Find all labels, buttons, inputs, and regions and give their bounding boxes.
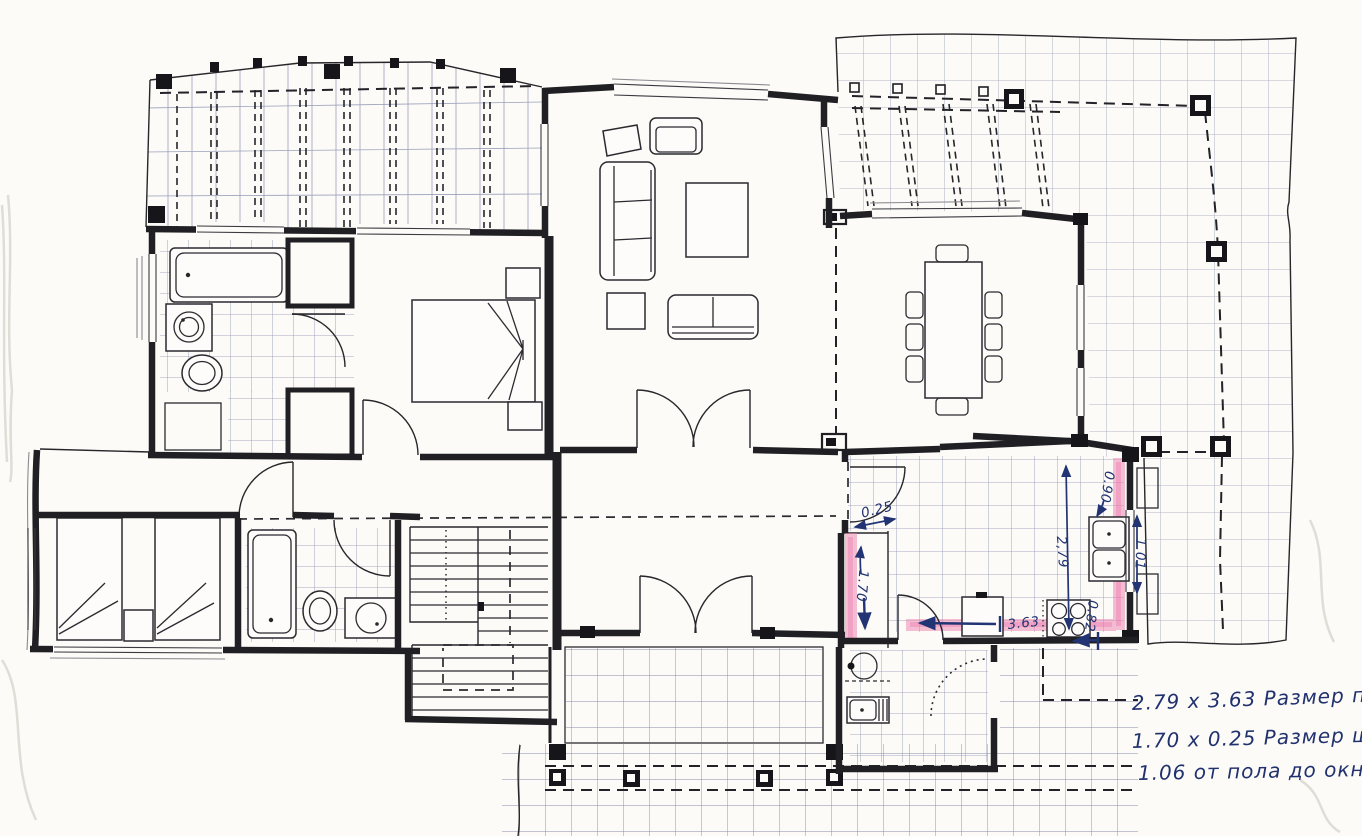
french-door-living xyxy=(637,390,750,448)
staircase xyxy=(410,527,548,722)
bathroom-2 xyxy=(246,520,396,642)
bathtub-2 xyxy=(248,530,296,638)
pergola-terrace xyxy=(140,55,550,235)
utility-room xyxy=(845,650,988,762)
closet-bottom xyxy=(288,390,352,456)
master-bedroom-door xyxy=(363,400,418,455)
square-table xyxy=(607,293,645,329)
side-table xyxy=(603,125,641,156)
note-line-1: 2.79 x 3.63 Размер по с xyxy=(1131,682,1362,715)
nightstand-top xyxy=(506,268,540,298)
master-bedroom xyxy=(363,268,542,455)
sink xyxy=(166,304,212,351)
bathroom-1 xyxy=(160,240,354,456)
note-line-3: 1.06 от пола до окна. xyxy=(1138,757,1362,785)
dim-kitchen-depth: 2,79 xyxy=(1053,536,1071,569)
dim-cabinet-length: 1.70 xyxy=(853,569,872,602)
double-bed xyxy=(412,300,535,402)
toilet-2 xyxy=(303,591,337,631)
toilet xyxy=(182,355,222,391)
dining-table xyxy=(925,262,982,398)
bedroom2-door xyxy=(239,462,293,517)
closet-top xyxy=(288,240,352,306)
dim-kitchen-width: 3.63 xyxy=(1007,614,1041,633)
floor-plan-scan: 2,79 3.63 0.25 1.70 0.90 1.01 0.82 2.79 … xyxy=(0,0,1362,836)
handwritten-notes: 2.79 x 3.63 Размер по с 1.70 x 0.25 Разм… xyxy=(1131,682,1362,785)
single-bed-1 xyxy=(57,518,122,640)
utility-sink xyxy=(847,697,889,723)
bathtub xyxy=(170,248,288,302)
single-bed-2 xyxy=(155,518,220,640)
armchair xyxy=(650,118,702,154)
french-door-entrance xyxy=(640,576,752,633)
nightstand-bottom xyxy=(508,402,542,430)
sofa xyxy=(600,162,655,280)
kitchen-counter xyxy=(962,592,1003,636)
floor-plan-drawing: 2,79 3.63 0.25 1.70 0.90 1.01 0.82 2.79 … xyxy=(0,0,1362,836)
coffee-table xyxy=(686,183,748,257)
dining-open-side xyxy=(822,210,846,450)
nightstand xyxy=(124,610,153,641)
entrance-porch xyxy=(502,647,1138,836)
living-room xyxy=(600,118,758,339)
dining-room xyxy=(822,210,1002,450)
dim-window-height: 1.01 xyxy=(1131,538,1148,571)
loveseat xyxy=(668,295,758,339)
sink-2 xyxy=(345,598,396,638)
kitchen-sink xyxy=(1089,517,1129,581)
note-line-2: 1.70 x 0.25 Размер шкафа xyxy=(1132,721,1362,753)
